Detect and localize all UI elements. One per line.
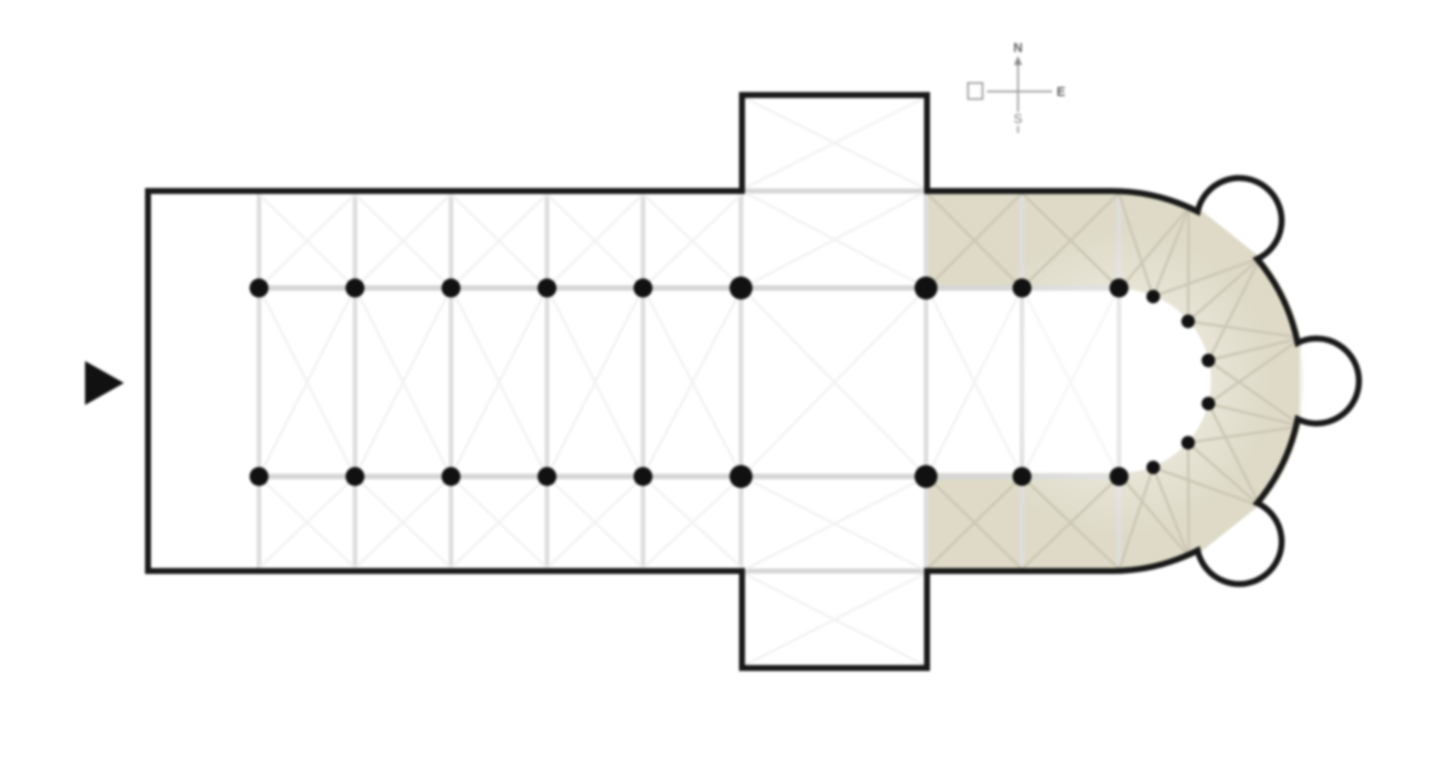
svg-text:E: E — [1057, 84, 1066, 99]
svg-text:S: S — [1014, 111, 1023, 126]
svg-text:N: N — [1013, 40, 1022, 55]
